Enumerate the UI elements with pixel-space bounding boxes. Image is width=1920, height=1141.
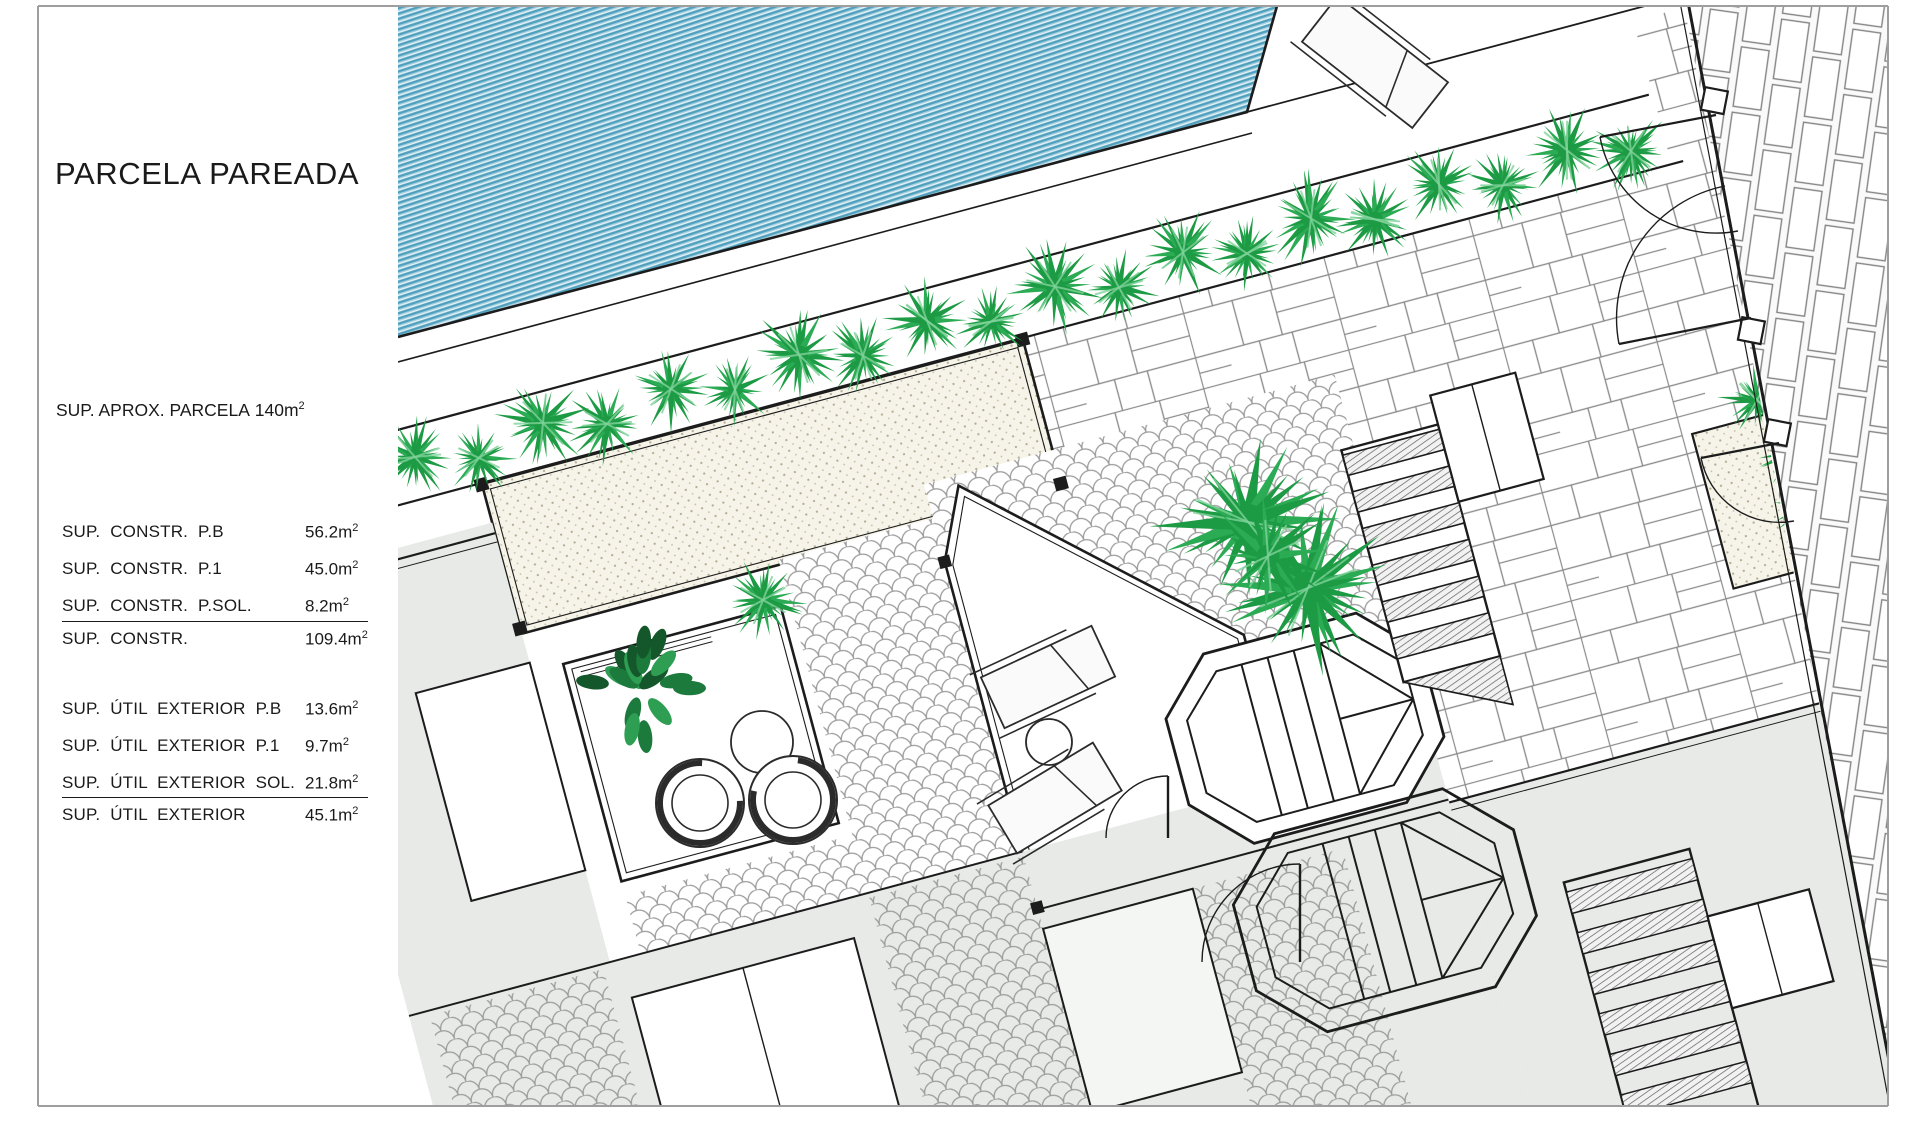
util-total-rule <box>62 797 368 798</box>
area-row-constr-pb: SUP. CONSTR. P.B 56.2m2 <box>62 522 382 544</box>
terrace-side-table <box>1026 719 1072 765</box>
constr-total-rule <box>62 621 368 622</box>
plan-title: PARCELA PAREADA <box>55 156 359 192</box>
area-row-constr-psol: SUP. CONSTR. P.SOL. 8.2m2 <box>62 596 382 618</box>
parcel-area-line: SUP. APROX. PARCELA 140m2 <box>56 400 305 421</box>
area-row-util-sol: SUP. ÚTIL EXTERIOR SOL. 21.8m2 <box>62 773 382 795</box>
area-row-util-total: SUP. ÚTIL EXTERIOR 45.1m2 <box>62 805 382 827</box>
area-row-util-p1: SUP. ÚTIL EXTERIOR P.1 9.7m2 <box>62 736 382 758</box>
area-row-constr-total: SUP. CONSTR. 109.4m2 <box>62 629 382 651</box>
site-plan-page: PARCELA PAREADA SUP. APROX. PARCELA 140m… <box>0 0 1920 1141</box>
round-chair <box>749 756 837 844</box>
area-row-constr-p1: SUP. CONSTR. P.1 45.0m2 <box>62 559 382 581</box>
area-row-util-pb: SUP. ÚTIL EXTERIOR P.B 13.6m2 <box>62 699 382 721</box>
round-chair <box>656 759 744 847</box>
